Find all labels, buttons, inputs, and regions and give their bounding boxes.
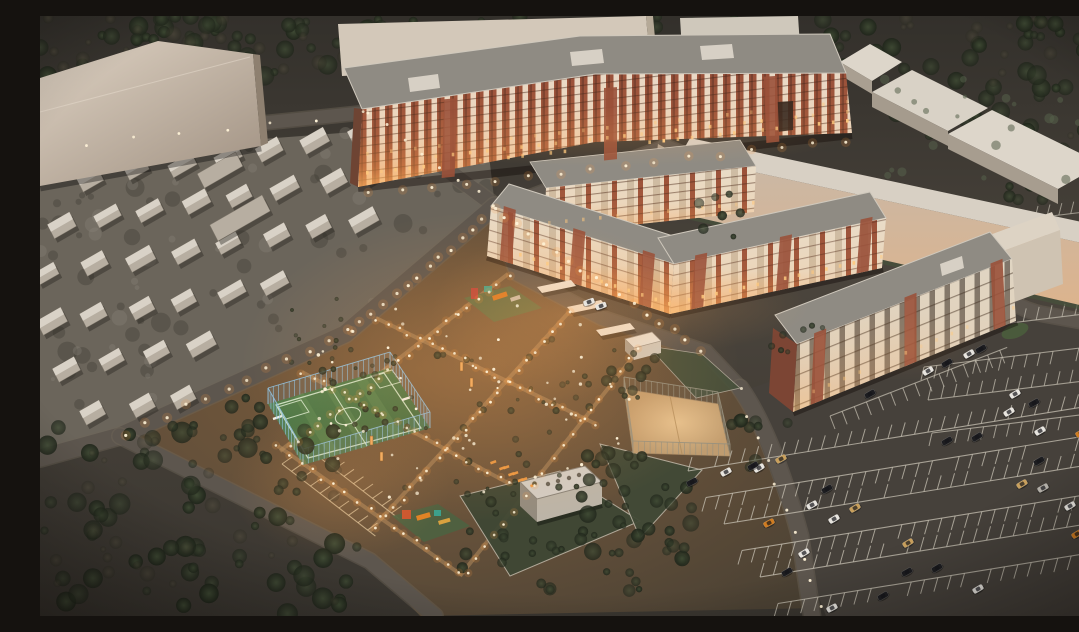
- render-viewport: Aerial dusk 3D render of a residential c…: [40, 16, 1079, 616]
- vignette: [40, 16, 1079, 616]
- aerial-render: [40, 16, 1079, 616]
